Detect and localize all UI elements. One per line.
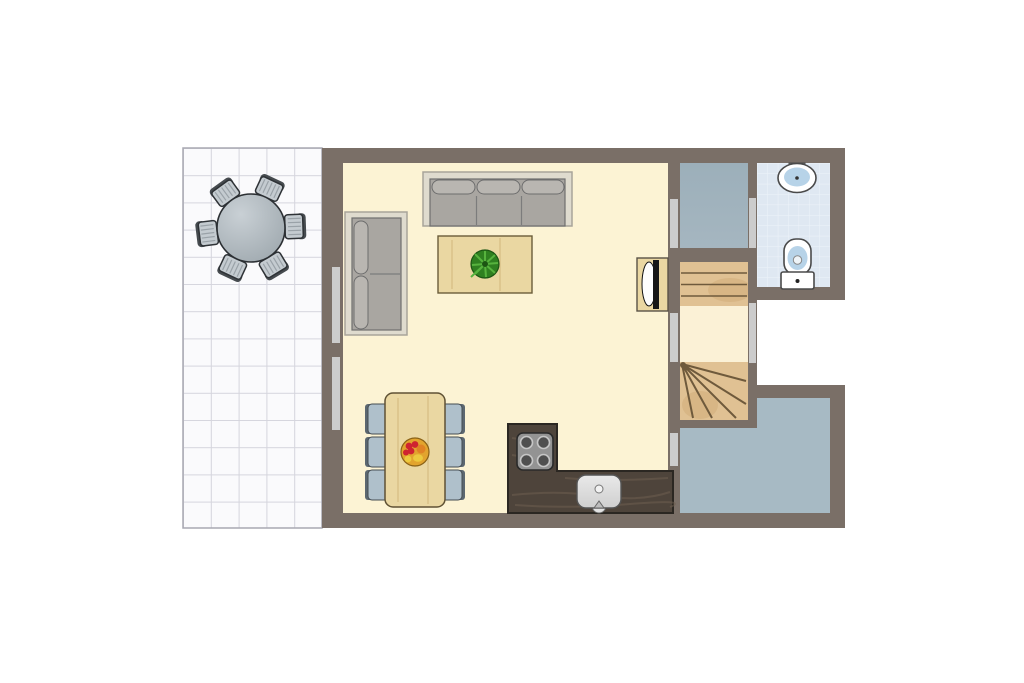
window-left-1 [332, 267, 340, 343]
toilet-button [796, 279, 800, 283]
door-living-hallway [670, 433, 678, 466]
cooktop [517, 433, 553, 470]
sofa-back-cushion [354, 221, 368, 274]
plant-center [482, 261, 488, 267]
sofa-back-cushion [354, 276, 368, 329]
sofa-back-cushion [432, 180, 475, 194]
burner [538, 455, 550, 467]
window-left-2 [332, 357, 340, 430]
fruit-lemon [405, 456, 412, 463]
fruit-lemon [413, 454, 423, 462]
stair-landing [680, 306, 748, 362]
sink-drain [595, 485, 603, 493]
burner [521, 455, 533, 467]
kitchen-sink [577, 475, 621, 513]
toilet [781, 239, 814, 289]
terrace-chair [195, 219, 219, 247]
storage-room-floor [680, 163, 748, 248]
terrace-chair [285, 213, 307, 240]
two-seat-sofa [345, 212, 407, 335]
sofa-back-cushion [522, 180, 564, 194]
floor-plan-canvas [0, 0, 1024, 683]
wall-winder-bottom [668, 420, 757, 428]
tv-cabinet-group [637, 258, 668, 311]
wall-top [322, 148, 845, 163]
washbasin-drain [795, 176, 799, 180]
wall-storage-stairs [668, 248, 757, 262]
fruit-bowl [401, 438, 429, 466]
wall-bathroom-right [830, 148, 845, 300]
burner [538, 437, 550, 449]
terrace [183, 148, 322, 528]
round-terrace-table [217, 194, 285, 262]
fruit-orange [417, 445, 426, 454]
dining-set [365, 393, 465, 507]
stair-wood-grain [708, 278, 752, 302]
wall-bottom [322, 513, 845, 528]
staircase [680, 262, 752, 420]
wall-hallway-right [830, 385, 845, 528]
tv-flatscreen [653, 260, 659, 309]
toilet-drain [793, 256, 801, 264]
door-living-storage [670, 199, 678, 248]
window-stairwell [749, 303, 756, 363]
three-seat-sofa [423, 172, 572, 226]
washbasin [778, 163, 816, 193]
potted-plant [471, 250, 499, 278]
floor-plan-drawing [0, 0, 1024, 683]
sofa-back-cushion [477, 180, 520, 194]
burner [521, 437, 533, 449]
coffee-table-group [438, 236, 532, 293]
door-storage-bathroom [749, 198, 756, 248]
winder-pivot [680, 362, 686, 368]
door-living-stairs [670, 313, 678, 362]
fruit-grape [403, 450, 409, 456]
